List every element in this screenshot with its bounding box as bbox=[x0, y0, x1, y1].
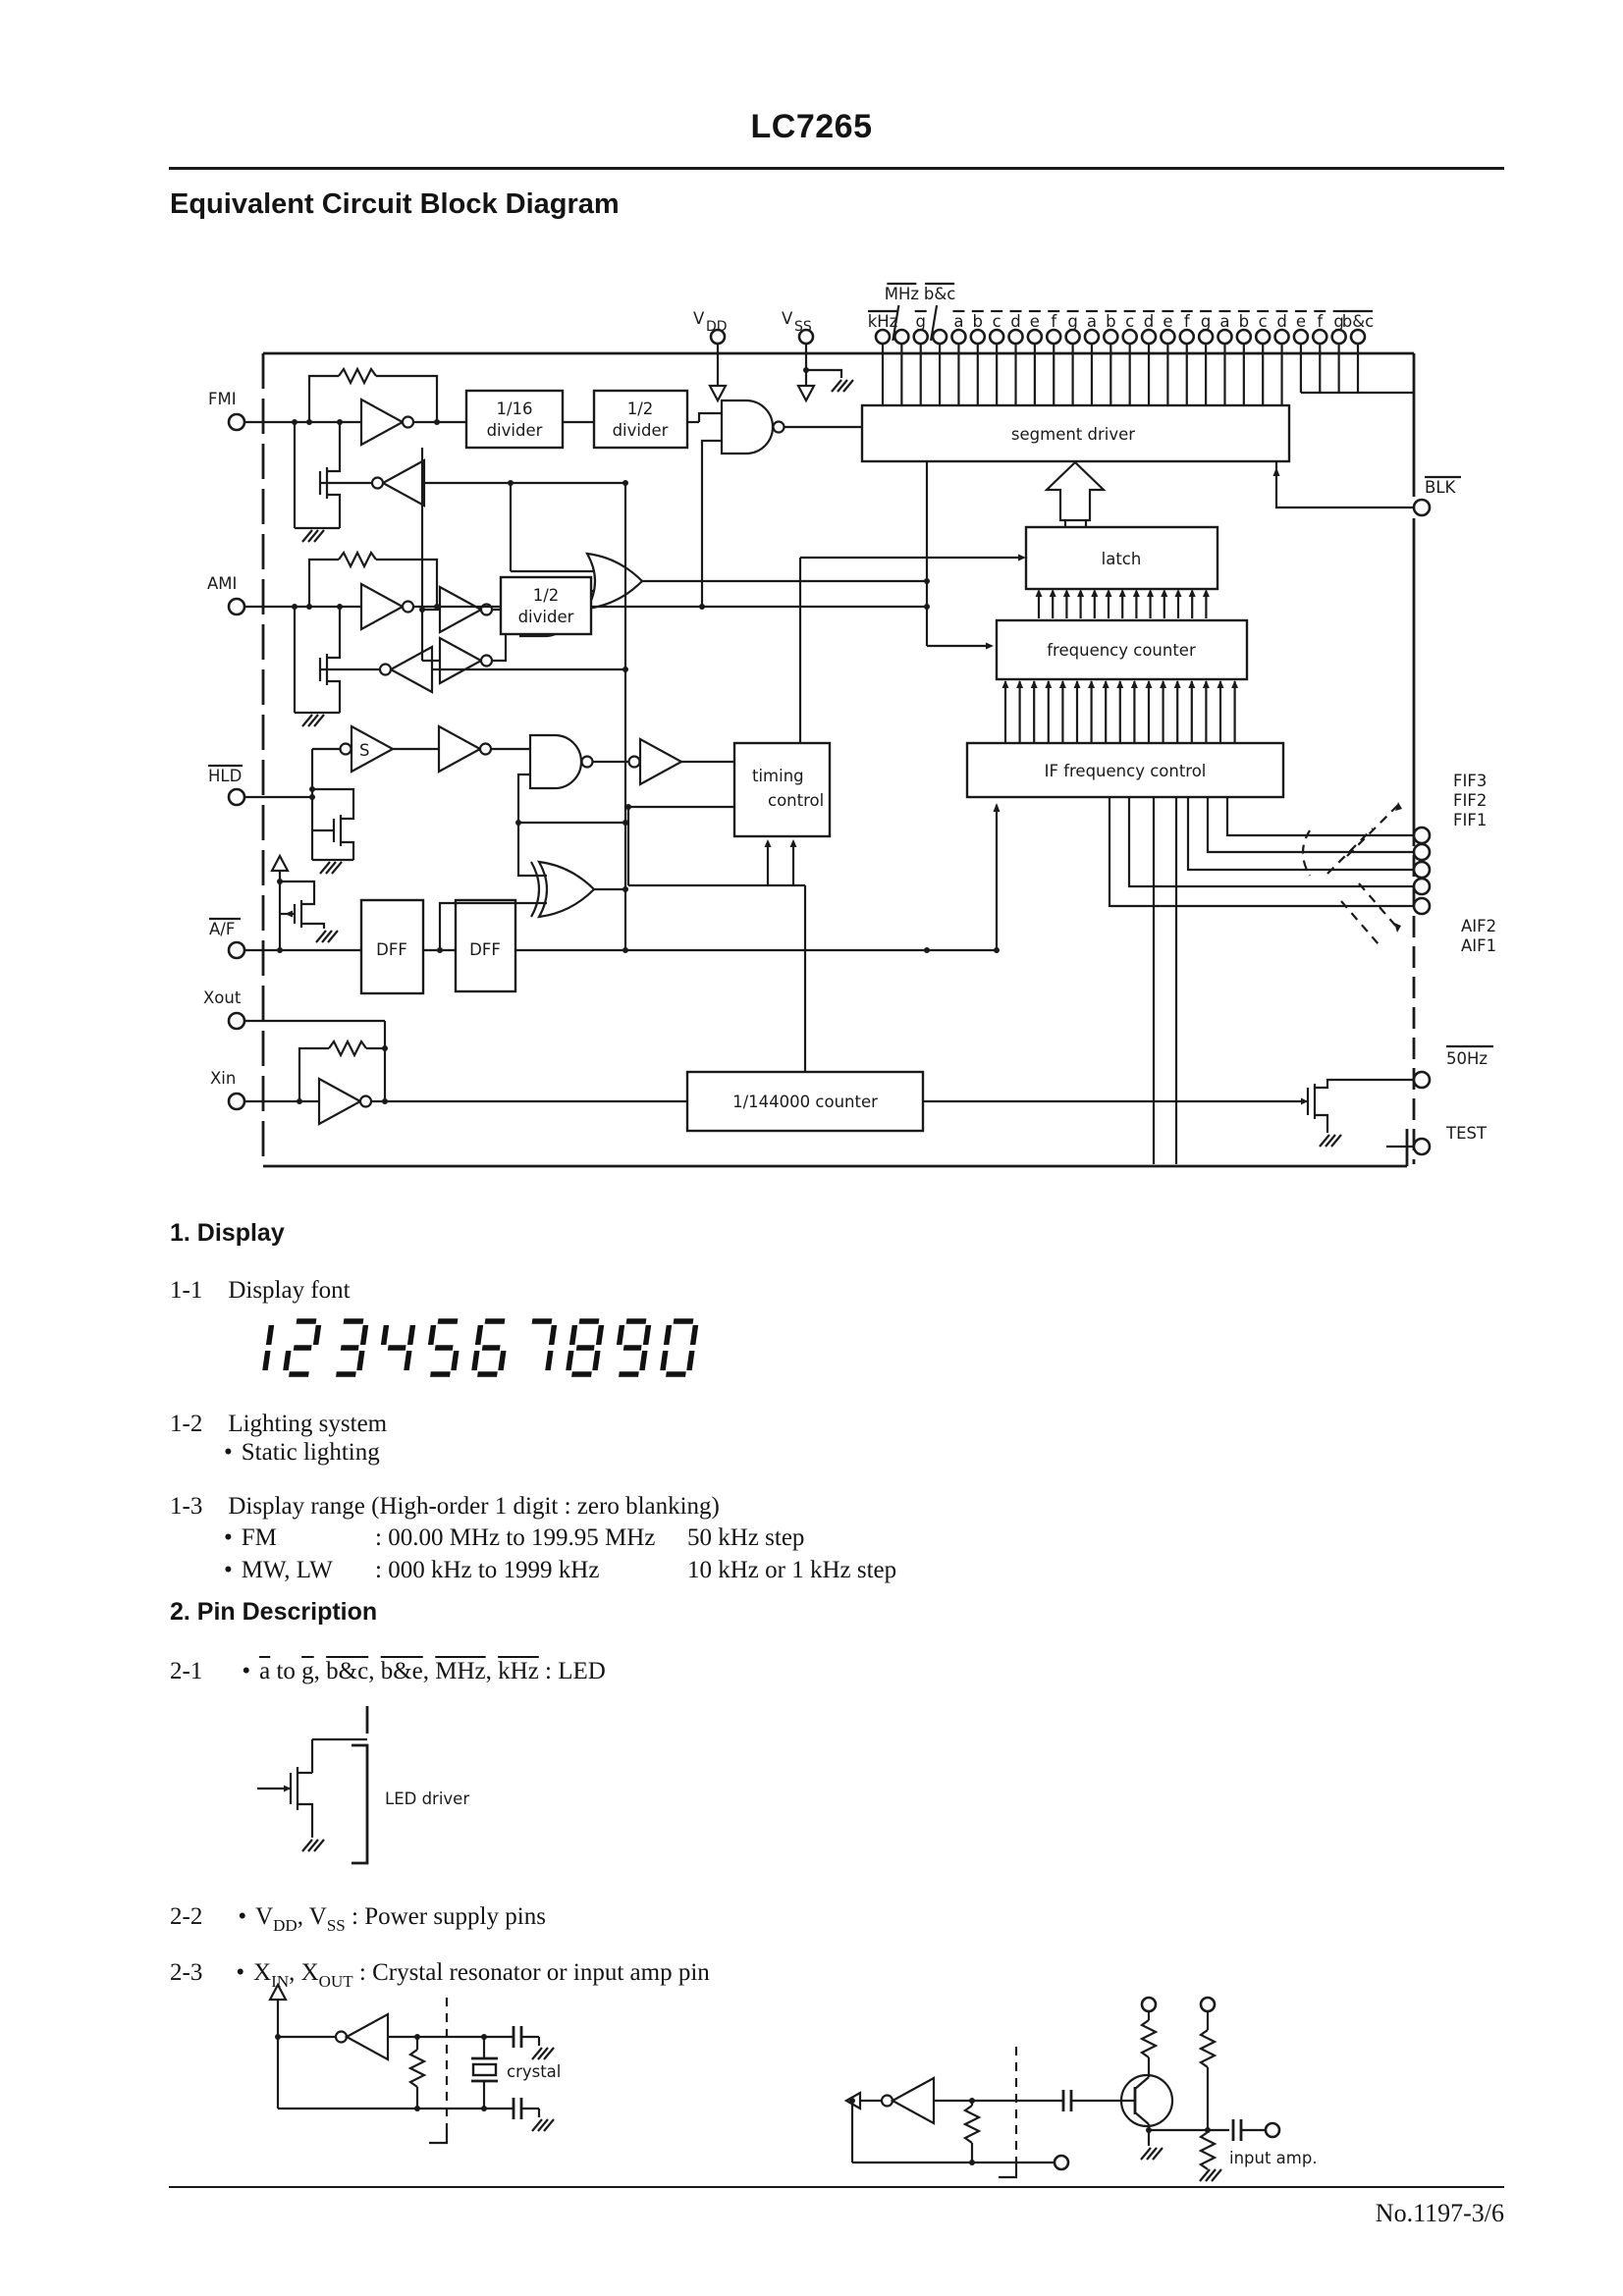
segment-pin bbox=[1180, 330, 1194, 344]
element: 1-1 bbox=[170, 1277, 202, 1304]
wire bbox=[599, 1325, 602, 1345]
ground-icon bbox=[1200, 2169, 1221, 2181]
element bbox=[1161, 589, 1167, 597]
node bbox=[292, 604, 298, 610]
wire bbox=[667, 1325, 670, 1345]
wire bbox=[309, 560, 339, 607]
element bbox=[1016, 680, 1023, 688]
element bbox=[1050, 589, 1056, 597]
element bbox=[1188, 680, 1195, 688]
element: : LED bbox=[539, 1658, 606, 1684]
element: FM bbox=[242, 1524, 277, 1551]
node bbox=[582, 757, 593, 768]
output-stage: 50Hz TEST bbox=[1308, 1046, 1493, 1154]
wire bbox=[1129, 797, 1415, 886]
element bbox=[1088, 680, 1095, 688]
crystal-icon bbox=[473, 2064, 496, 2075]
footer-page-ref: No.1197-3/6 bbox=[1178, 2199, 1504, 2228]
wire bbox=[431, 1325, 434, 1345]
element bbox=[1175, 589, 1182, 597]
element: 1/144000 counter bbox=[732, 1093, 878, 1111]
element bbox=[765, 839, 772, 847]
power-pins: V DD V SS bbox=[693, 309, 853, 400]
element bbox=[1036, 589, 1043, 597]
resistor-icon bbox=[965, 2106, 979, 2143]
element: Display range (High-order 1 digit : zero… bbox=[228, 1493, 720, 1520]
segment-pin-label: c bbox=[1259, 312, 1268, 331]
wire bbox=[376, 376, 437, 422]
test-pin bbox=[1414, 1139, 1430, 1154]
timing-control-block bbox=[734, 743, 830, 836]
wire bbox=[595, 1351, 598, 1370]
element: timing bbox=[752, 767, 804, 785]
element: segment driver bbox=[1011, 425, 1135, 444]
segment-pin-label: g bbox=[1201, 312, 1211, 331]
xor-gate-icon bbox=[531, 862, 594, 917]
segment-pin bbox=[1275, 330, 1289, 344]
section-2-2: 2-2•VDD, VSS : Power supply pins bbox=[170, 1903, 546, 1936]
wire bbox=[327, 495, 340, 528]
node bbox=[414, 2106, 420, 2111]
element: IN bbox=[271, 1972, 289, 1991]
wire bbox=[429, 2128, 447, 2143]
ami-input-stage: AMI 1/2 divider bbox=[207, 553, 930, 726]
element: MW, LW bbox=[242, 1557, 333, 1583]
resistor-icon bbox=[1201, 2030, 1215, 2067]
segment-pin bbox=[1009, 330, 1023, 344]
bullet-icon: • bbox=[224, 1439, 233, 1466]
ground-icon bbox=[320, 862, 342, 874]
segment-pin bbox=[1047, 330, 1060, 344]
section-1-2-item: •Static lighting bbox=[224, 1439, 380, 1467]
seven-seg-digit bbox=[426, 1321, 460, 1374]
segment-pin bbox=[876, 330, 890, 344]
amp-output-pin bbox=[1266, 2123, 1279, 2137]
element: : Crystal resonator or input amp pin bbox=[353, 1959, 710, 1986]
inverter-icon bbox=[319, 1079, 360, 1124]
node bbox=[924, 947, 930, 953]
or-gate-icon bbox=[587, 554, 642, 609]
seven-seg-digit bbox=[265, 1325, 271, 1370]
wire bbox=[699, 413, 722, 422]
inverter-icon bbox=[893, 2078, 934, 2123]
nand-gate-icon bbox=[722, 400, 773, 454]
node bbox=[434, 419, 440, 425]
segment-pin-label: d bbox=[1010, 312, 1020, 331]
node bbox=[803, 367, 809, 373]
vdd-pin bbox=[711, 330, 725, 344]
element bbox=[986, 643, 994, 650]
wire bbox=[327, 422, 340, 471]
segment-pin-label: b bbox=[973, 312, 983, 331]
segment-pin bbox=[1332, 330, 1346, 344]
seven-seg-digit bbox=[568, 1321, 602, 1374]
wire bbox=[327, 607, 340, 658]
wire bbox=[352, 1745, 367, 1863]
vss-label: V bbox=[782, 309, 793, 328]
capacitor-icon bbox=[1063, 2090, 1071, 2111]
inverter-icon bbox=[391, 647, 432, 692]
wire bbox=[269, 1325, 272, 1345]
bus-arrow-icon bbox=[1047, 462, 1104, 520]
element bbox=[1091, 589, 1098, 597]
element: frequency counter bbox=[1047, 641, 1196, 660]
section-2-1: 2-1•a to g, b&c, b&e, MHz, kHz : LED bbox=[170, 1658, 606, 1685]
wire bbox=[1315, 1080, 1415, 1088]
wire bbox=[376, 560, 437, 607]
footer-rule bbox=[169, 2186, 1504, 2188]
seven-seg-digit bbox=[380, 1325, 412, 1370]
element: Display font bbox=[228, 1277, 350, 1304]
nand-gate-icon bbox=[530, 735, 581, 788]
element: 2-3 bbox=[170, 1959, 202, 1986]
right-pin-label: AIF2 bbox=[1461, 917, 1496, 935]
fif1-pin bbox=[1414, 862, 1430, 878]
element: divider bbox=[487, 421, 543, 440]
wire bbox=[1227, 797, 1415, 835]
ground-icon bbox=[316, 931, 338, 942]
bullet-icon: • bbox=[236, 1959, 244, 1986]
element: , bbox=[423, 1658, 436, 1684]
oscillator-stage: Xout Xin 1/144000 counter bbox=[203, 988, 1308, 1131]
wire bbox=[663, 1351, 666, 1370]
wire bbox=[693, 1325, 696, 1345]
ami-pin bbox=[229, 599, 244, 614]
element bbox=[1059, 680, 1066, 688]
element bbox=[1119, 589, 1126, 597]
fif2-pin bbox=[1414, 844, 1430, 860]
element bbox=[1133, 589, 1140, 597]
node bbox=[403, 417, 413, 428]
wire bbox=[501, 1351, 504, 1370]
segment-pin bbox=[1123, 330, 1137, 344]
wire bbox=[298, 1804, 312, 1838]
wire bbox=[384, 1325, 387, 1345]
element: 1-2 bbox=[170, 1411, 202, 1437]
segment-pin bbox=[1294, 330, 1308, 344]
node bbox=[306, 419, 312, 425]
wire bbox=[363, 1325, 366, 1345]
hld-pin bbox=[229, 789, 244, 805]
wire bbox=[689, 1351, 692, 1370]
xin-pin bbox=[229, 1094, 244, 1109]
ground-icon bbox=[532, 2048, 554, 2059]
xin-node-pin bbox=[1055, 2156, 1068, 2169]
inverter-icon bbox=[383, 460, 424, 506]
element: , V bbox=[298, 1903, 327, 1930]
input-amp-label: input amp. bbox=[1229, 2149, 1318, 2167]
segment-pin-label: d bbox=[1276, 312, 1286, 331]
wire bbox=[406, 1351, 409, 1370]
segment-pin bbox=[894, 330, 908, 344]
inverter-icon bbox=[440, 638, 481, 683]
supply-pin bbox=[1201, 1998, 1215, 2011]
aif1-pin bbox=[1414, 898, 1430, 914]
segment-pin bbox=[990, 330, 1003, 344]
element: kHz bbox=[498, 1658, 539, 1684]
element: DD bbox=[273, 1916, 298, 1935]
segment-pin-label: a bbox=[1219, 312, 1229, 331]
element: 1/2 bbox=[627, 400, 654, 418]
element: 1/16 bbox=[496, 400, 532, 418]
wire bbox=[552, 1325, 555, 1345]
node bbox=[277, 947, 283, 953]
wire bbox=[999, 2164, 1016, 2177]
wire bbox=[1135, 2112, 1149, 2124]
segment-pin-label: a bbox=[953, 312, 963, 331]
node bbox=[774, 422, 784, 433]
element: Lighting system bbox=[228, 1411, 387, 1437]
node bbox=[341, 744, 352, 755]
wire bbox=[806, 370, 841, 378]
display-range-row: •MW, LW bbox=[224, 1557, 333, 1584]
right-pin-label: BLK bbox=[1425, 478, 1457, 497]
node bbox=[292, 419, 298, 425]
seven-seg-digit bbox=[662, 1321, 696, 1374]
blk-pin bbox=[1414, 500, 1430, 515]
segment-pin bbox=[1313, 330, 1326, 344]
element bbox=[1074, 680, 1081, 688]
left-pin-label: HLD bbox=[208, 767, 242, 785]
element: DFF bbox=[376, 940, 407, 959]
capacitor-icon bbox=[1233, 2119, 1241, 2141]
element: divider bbox=[613, 421, 669, 440]
element: 1-3 bbox=[170, 1493, 202, 1520]
right-pin-label: FIF1 bbox=[1453, 811, 1487, 829]
vdd-label: V bbox=[693, 309, 705, 328]
resistor-icon bbox=[339, 369, 376, 383]
element bbox=[1131, 680, 1138, 688]
inverter-icon bbox=[439, 726, 480, 772]
segment-pin-label: b&c bbox=[1342, 312, 1374, 331]
inverter-icon bbox=[347, 2014, 388, 2059]
element: X bbox=[253, 1959, 271, 1986]
inverter-icon bbox=[440, 587, 481, 632]
element bbox=[1116, 680, 1123, 688]
element: DFF bbox=[469, 940, 501, 959]
element bbox=[1045, 680, 1052, 688]
element: 1/2 bbox=[533, 586, 560, 605]
fif3-pin bbox=[1414, 828, 1430, 843]
ground-icon bbox=[302, 1840, 324, 1851]
wire bbox=[312, 789, 353, 819]
xout-pin bbox=[229, 1013, 244, 1029]
wire bbox=[316, 1325, 319, 1345]
segment-pin-label: b bbox=[1106, 312, 1115, 331]
resistor-icon bbox=[339, 553, 376, 566]
element bbox=[1189, 589, 1196, 597]
crystal-figure: crystal bbox=[270, 1985, 561, 2143]
crystal-label: crystal bbox=[507, 2062, 561, 2081]
segment-pin-row: kHzMHzgb&cabcdefgabcdefgabcdefgb&c bbox=[868, 284, 1414, 405]
display-range-value: : 000 kHz to 1999 kHz bbox=[375, 1557, 599, 1584]
segment-pin-label: b&c bbox=[924, 285, 955, 303]
display-font-digits bbox=[265, 1321, 696, 1374]
element bbox=[790, 839, 797, 847]
timing-control: timing control bbox=[625, 555, 1026, 1073]
capacitor-icon bbox=[514, 2026, 521, 2048]
node bbox=[403, 602, 413, 613]
node bbox=[629, 757, 640, 768]
wire bbox=[265, 1351, 268, 1370]
segment-pin-label: kHz bbox=[868, 312, 898, 331]
node bbox=[924, 604, 930, 610]
segment-pin bbox=[1199, 330, 1213, 344]
element: IF frequency control bbox=[1045, 762, 1207, 780]
section-2-heading: 2. Pin Description bbox=[170, 1598, 377, 1627]
element bbox=[1077, 589, 1084, 597]
element bbox=[1160, 680, 1166, 688]
wire bbox=[1276, 461, 1415, 507]
wire bbox=[1347, 805, 1398, 856]
left-pin-label: Xin bbox=[210, 1069, 236, 1088]
right-pin-label: FIF3 bbox=[1453, 772, 1487, 790]
led-driver-label: LED driver bbox=[385, 1789, 469, 1808]
pin-50hz bbox=[1414, 1072, 1430, 1088]
circuit-block-diagram: V DD V SS kHzMHzgb&cabcdefgabcdefgabcdef… bbox=[0, 0, 1623, 2296]
element: to bbox=[270, 1658, 301, 1684]
element: V bbox=[255, 1903, 273, 1930]
segment-pin-label: f bbox=[1051, 312, 1057, 331]
inverter-icon bbox=[640, 739, 681, 784]
node bbox=[380, 665, 391, 675]
right-pin-label: FIF2 bbox=[1453, 791, 1487, 810]
segment-pin bbox=[933, 330, 947, 344]
wire bbox=[646, 1325, 649, 1345]
node bbox=[481, 656, 492, 667]
ground-icon bbox=[832, 380, 853, 392]
segment-pin bbox=[1085, 330, 1099, 344]
segment-pin bbox=[1066, 330, 1080, 344]
inverter-icon bbox=[361, 400, 403, 445]
segment-pin bbox=[1351, 330, 1365, 344]
element bbox=[1106, 589, 1112, 597]
segment-pin-label: e bbox=[1163, 312, 1172, 331]
right-pin-label: AIF1 bbox=[1461, 936, 1496, 955]
segment-pin-label: d bbox=[1144, 312, 1154, 331]
element: , bbox=[314, 1658, 327, 1684]
if-outputs: FIF3 FIF2 FIF1 AIF2 AIF1 bbox=[1109, 772, 1496, 955]
element bbox=[1063, 589, 1070, 597]
aif2-pin bbox=[1414, 879, 1430, 894]
node bbox=[622, 947, 628, 953]
element: divider bbox=[518, 608, 574, 626]
wire bbox=[568, 1351, 571, 1370]
element: MHz bbox=[435, 1658, 485, 1684]
capacitor-icon bbox=[514, 2098, 521, 2119]
segment-pin-label: c bbox=[993, 312, 1001, 331]
node bbox=[372, 478, 383, 489]
resistor-icon bbox=[329, 1041, 366, 1055]
bullet-icon: • bbox=[224, 1557, 233, 1583]
section-1-1: 1-1Display font bbox=[170, 1277, 351, 1305]
resistor-icon bbox=[1142, 2020, 1156, 2057]
element: , X bbox=[289, 1959, 319, 1986]
wire bbox=[280, 881, 314, 904]
element bbox=[1394, 923, 1401, 933]
segment-pin-label: a bbox=[1087, 312, 1097, 331]
bullet-icon: • bbox=[224, 1524, 233, 1551]
symbol bbox=[710, 386, 726, 400]
element bbox=[1273, 467, 1280, 476]
wire bbox=[642, 1351, 645, 1370]
node bbox=[277, 879, 283, 884]
element: b&e bbox=[381, 1658, 423, 1684]
resistor-icon bbox=[410, 2050, 424, 2087]
element: control bbox=[768, 791, 824, 810]
wire bbox=[301, 924, 324, 929]
element bbox=[1217, 680, 1224, 688]
node bbox=[924, 578, 930, 584]
datasheet-page: LC7265 Equivalent Circuit Block Diagram bbox=[0, 0, 1623, 2296]
section-1-2: 1-2Lighting system bbox=[170, 1411, 387, 1438]
section-2-3: 2-3•XIN, XOUT : Crystal resonator or inp… bbox=[170, 1959, 710, 1992]
seven-seg-digit bbox=[615, 1321, 649, 1374]
seven-seg-digit bbox=[473, 1321, 508, 1374]
resistor-icon bbox=[1201, 2132, 1215, 2169]
wire bbox=[454, 1351, 457, 1370]
ground-icon bbox=[302, 715, 324, 726]
wire bbox=[309, 376, 339, 422]
segment-pin bbox=[1142, 330, 1156, 344]
wire bbox=[1341, 901, 1379, 944]
node bbox=[480, 744, 491, 755]
display-range-value: : 00.00 MHz to 199.95 MHz bbox=[375, 1524, 655, 1552]
seven-seg-digit bbox=[285, 1321, 319, 1374]
element bbox=[1203, 680, 1210, 688]
element: a bbox=[259, 1658, 270, 1684]
element bbox=[1147, 589, 1154, 597]
display-range-row: •FM bbox=[224, 1524, 277, 1552]
element bbox=[285, 911, 293, 918]
node bbox=[360, 1096, 371, 1107]
ground-icon bbox=[302, 530, 324, 542]
fmi-pin bbox=[229, 414, 244, 430]
segment-pin-label: e bbox=[1296, 312, 1306, 331]
segment-pin bbox=[1161, 330, 1174, 344]
element: b&c bbox=[326, 1658, 368, 1684]
wire bbox=[299, 1048, 329, 1101]
section-1-3: 1-3Display range (High-order 1 digit : z… bbox=[170, 1493, 720, 1521]
inverter-icon bbox=[361, 584, 403, 629]
node bbox=[337, 604, 343, 610]
seven-seg-digit bbox=[525, 1321, 555, 1370]
wire bbox=[548, 1351, 551, 1370]
node bbox=[309, 786, 315, 792]
section-1-heading: 1. Display bbox=[170, 1219, 285, 1248]
element: SS bbox=[327, 1916, 346, 1935]
left-pin-label: A/F bbox=[209, 920, 235, 938]
display-step-value: 10 kHz or 1 kHz step bbox=[687, 1557, 896, 1584]
element: Static lighting bbox=[242, 1439, 380, 1466]
segment-pin-label: MHz bbox=[885, 285, 919, 303]
node bbox=[1146, 2127, 1152, 2133]
segment-pin-label: f bbox=[1184, 312, 1191, 331]
element bbox=[1203, 589, 1210, 597]
wire bbox=[474, 1351, 477, 1370]
symbol bbox=[798, 386, 814, 400]
element: latch bbox=[1102, 550, 1142, 568]
wire bbox=[359, 1351, 362, 1370]
led-driver-figure: LED driver bbox=[257, 1706, 469, 1863]
element: , bbox=[486, 1658, 499, 1684]
right-pin-label: 50Hz bbox=[1446, 1049, 1488, 1068]
segment-pin bbox=[1104, 330, 1117, 344]
schmitt-label: S bbox=[359, 741, 369, 760]
segment-pin bbox=[1217, 330, 1231, 344]
element bbox=[1231, 680, 1238, 688]
segment-pin bbox=[971, 330, 985, 344]
